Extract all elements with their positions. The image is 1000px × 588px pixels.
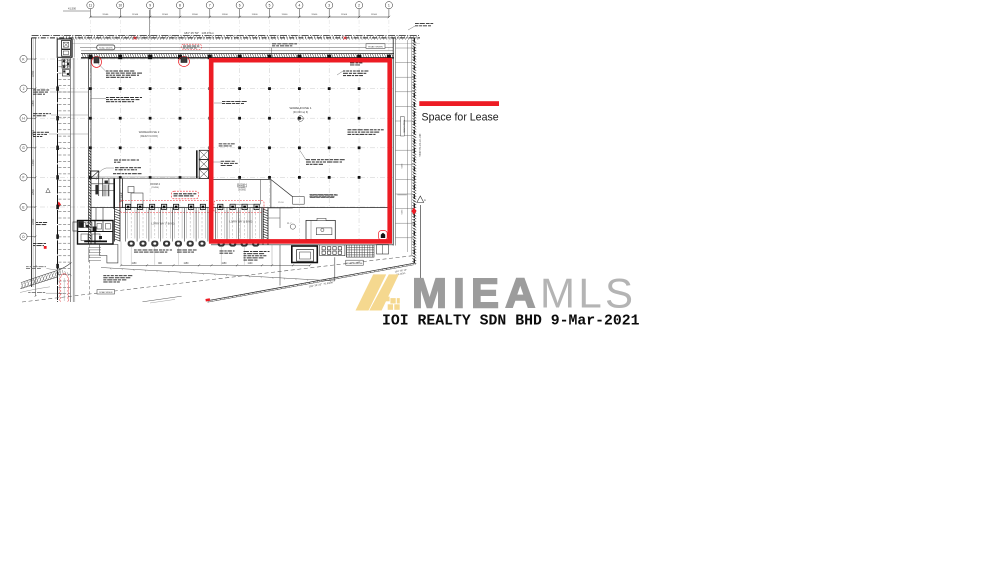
svg-text:41,500: 41,500 [68,7,76,11]
svg-text:PL 7: PL 7 [287,223,292,225]
svg-text:11500: 11500 [222,14,229,16]
svg-text:11500: 11500 [162,14,169,16]
svg-text:ROAD WIDEN: ROAD WIDEN [99,47,113,50]
svg-text:(73494): (73494) [238,190,246,192]
svg-text:ROAD RESERVE: ROAD RESERVE [347,262,364,265]
svg-text:(MEZZ FLOOR): (MEZZ FLOOR) [140,135,158,138]
svg-text:1150: 1150 [222,263,228,265]
svg-text:LORRY BAY (5 BAYS): LORRY BAY (5 BAYS) [230,221,253,224]
svg-text:4: 4 [298,4,300,8]
svg-text:MIEA: MIEA [412,270,535,317]
svg-text:5: 5 [269,4,271,8]
svg-text:11500: 11500 [252,14,259,16]
svg-text:1100: 1100 [248,263,254,265]
svg-text:ROAD WIDEN: ROAD WIDEN [402,120,405,134]
svg-text:WAREHOUSE 1: WAREHOUSE 1 [289,106,311,110]
svg-text:WAREHOUSE 2: WAREHOUSE 2 [139,130,160,134]
svg-text:E: E [22,205,24,209]
svg-text:10: 10 [118,4,122,8]
svg-text:1150: 1150 [132,263,138,265]
svg-text:194° 07' 10" 64.433m: 194° 07' 10" 64.433m [418,134,421,157]
svg-text:11500: 11500 [102,14,109,16]
svg-text:ROOM 4: ROOM 4 [150,183,160,186]
svg-text:11500: 11500 [33,188,35,195]
svg-text:ROAD WIDEN: ROAD WIDEN [99,291,113,294]
svg-text:11500: 11500 [371,14,378,16]
svg-text:(73494): (73494) [151,187,159,189]
svg-text:3: 3 [328,4,330,8]
svg-text:184° 25' 50" 145.971m: 184° 25' 50" 145.971m [184,31,215,35]
svg-text:11500: 11500 [33,159,35,166]
svg-text:A: A [424,198,426,202]
svg-text:2: 2 [358,4,360,8]
svg-text:LORRY BAY (7 BAYS): LORRY BAY (7 BAYS) [152,223,175,226]
svg-text:IOI REALTY SDN BHD 9-Mar-2021: IOI REALTY SDN BHD 9-Mar-2021 [382,314,640,330]
svg-text:6: 6 [239,4,241,8]
svg-text:7: 7 [209,4,211,8]
svg-text:MLS: MLS [540,270,634,317]
svg-text:PL.10: PL.10 [278,202,284,204]
svg-text:ROAD WIDEN: ROAD WIDEN [368,45,383,48]
svg-text:(30,000 sq ft): (30,000 sq ft) [293,110,308,114]
svg-text:11500: 11500 [33,100,35,107]
svg-text:11500: 11500 [33,218,35,225]
svg-text:11500: 11500 [33,70,35,77]
svg-text:9: 9 [149,4,151,8]
svg-text:11500: 11500 [192,14,199,16]
svg-text:11500: 11500 [132,14,139,16]
svg-text:1150: 1150 [184,263,190,265]
svg-text:ROOM 4: ROOM 4 [237,186,247,189]
svg-text:Space for Lease: Space for Lease [422,112,499,124]
svg-text:11500: 11500 [341,14,348,16]
svg-text:1: 1 [388,4,390,8]
svg-text:11: 11 [89,4,93,8]
svg-text:RC RAMP: RC RAMP [120,192,123,202]
svg-text:11500: 11500 [311,14,318,16]
svg-text:8: 8 [179,4,181,8]
svg-text:F: F [23,176,25,180]
svg-text:11500: 11500 [281,14,288,16]
